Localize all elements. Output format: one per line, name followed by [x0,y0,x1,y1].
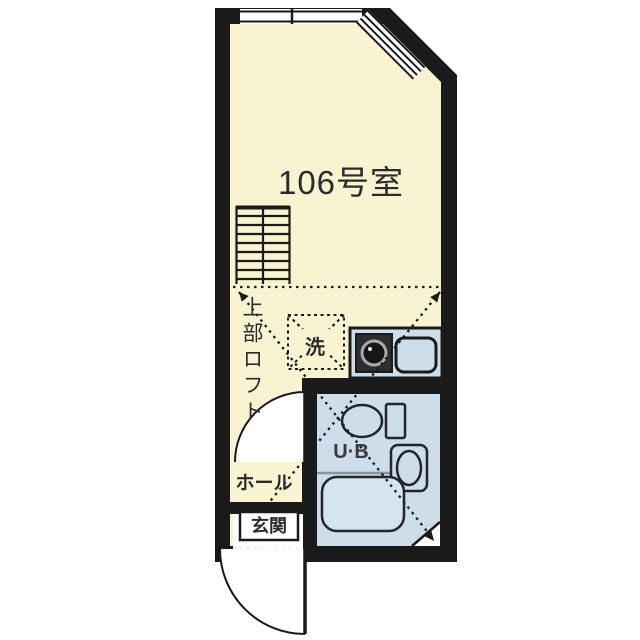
hall-label: ホール [230,468,298,495]
top-window-icon [240,9,362,24]
entrance-label: 玄関 [241,513,297,539]
floorplan: 106号室 上部ロフト 洗 U·B ホール 玄関 [0,0,640,640]
floorplan-geometry [0,0,640,640]
unit-bath-label: U·B [326,441,376,464]
entrance-door-swing-icon [220,549,305,634]
toilet-icon [342,404,405,438]
kitchen-sink-icon [396,338,436,372]
washer-label: 洗 [301,331,329,360]
loft-label: 上部ロフト [238,286,264,436]
room-number-label: 106号室 [241,156,441,204]
stove-burner-icon [356,334,392,372]
